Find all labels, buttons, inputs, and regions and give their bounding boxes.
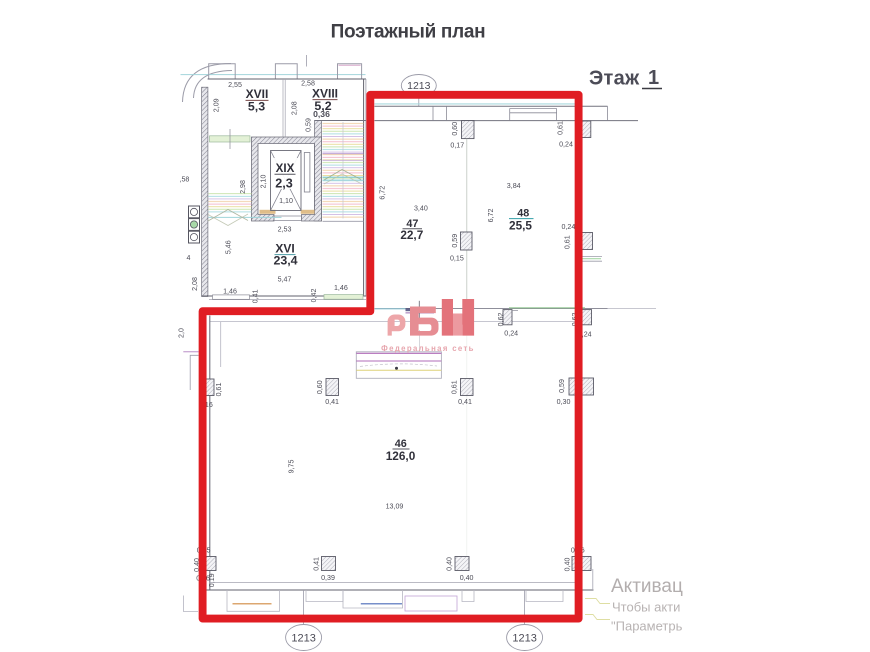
- svg-text:25,5: 25,5: [509, 219, 532, 233]
- svg-text:0,19: 0,19: [208, 573, 216, 587]
- svg-text:0,61: 0,61: [557, 121, 565, 135]
- svg-text:5,46: 5,46: [225, 240, 233, 254]
- svg-text:0,41: 0,41: [312, 557, 320, 571]
- svg-text:XIX: XIX: [276, 162, 295, 175]
- svg-text:1,10: 1,10: [279, 197, 293, 205]
- svg-text:0,62: 0,62: [497, 312, 505, 326]
- svg-text:48: 48: [517, 207, 529, 219]
- svg-text:23,4: 23,4: [273, 254, 297, 268]
- svg-text:0,61: 0,61: [451, 380, 459, 394]
- svg-text:0,59: 0,59: [451, 234, 459, 248]
- svg-text:1213: 1213: [512, 633, 536, 645]
- svg-text:Этаж: Этаж: [589, 68, 640, 90]
- svg-text:0,60: 0,60: [316, 380, 324, 394]
- svg-text:4: 4: [187, 254, 191, 262]
- svg-text:2,10: 2,10: [260, 175, 268, 189]
- svg-text:2,53: 2,53: [278, 226, 292, 234]
- svg-text:6,72: 6,72: [379, 186, 387, 200]
- svg-text:2,98: 2,98: [239, 180, 247, 194]
- svg-text:Поэтажный план: Поэтажный план: [331, 22, 486, 43]
- svg-text:,58: ,58: [180, 175, 190, 183]
- svg-text:9,75: 9,75: [288, 460, 296, 474]
- svg-text:6,72: 6,72: [487, 209, 495, 223]
- svg-text:2,09: 2,09: [213, 98, 221, 112]
- svg-text:0,15: 0,15: [450, 255, 464, 263]
- svg-text:22,7: 22,7: [400, 228, 423, 242]
- svg-text:0,17: 0,17: [450, 142, 464, 150]
- svg-text:1: 1: [648, 67, 659, 89]
- svg-text:2,0: 2,0: [178, 328, 186, 338]
- svg-text:0,59: 0,59: [558, 379, 566, 393]
- svg-text:0,61: 0,61: [215, 383, 223, 397]
- svg-text:2,08: 2,08: [291, 101, 299, 115]
- svg-text:46: 46: [395, 438, 407, 450]
- svg-text:0,39: 0,39: [321, 574, 335, 582]
- svg-text:1213: 1213: [407, 80, 431, 92]
- svg-text:5,47: 5,47: [278, 276, 292, 284]
- svg-text:0,41: 0,41: [458, 398, 472, 406]
- svg-text:3,84: 3,84: [507, 182, 521, 190]
- svg-text:126,0: 126,0: [386, 449, 416, 463]
- svg-text:0,60: 0,60: [451, 122, 459, 136]
- svg-text:Чтобы акти: Чтобы акти: [612, 600, 680, 615]
- svg-text:0,24: 0,24: [504, 329, 518, 337]
- svg-text:5,3: 5,3: [248, 99, 265, 113]
- svg-text:2,55: 2,55: [228, 81, 242, 89]
- svg-text:0,40: 0,40: [446, 557, 454, 571]
- svg-text:2,3: 2,3: [275, 176, 293, 190]
- svg-text:0,59: 0,59: [305, 118, 313, 132]
- svg-text:0,40: 0,40: [563, 557, 571, 571]
- svg-text:0,40: 0,40: [460, 574, 474, 582]
- svg-text:"Параметрь: "Параметрь: [611, 619, 683, 634]
- svg-text:Активац: Активац: [611, 576, 683, 597]
- svg-text:1,46: 1,46: [334, 284, 348, 292]
- svg-text:1,46: 1,46: [223, 287, 237, 295]
- svg-text:13,09: 13,09: [386, 502, 404, 510]
- svg-text:0,61: 0,61: [564, 235, 572, 249]
- svg-text:Федеральная сеть: Федеральная сеть: [381, 344, 475, 353]
- svg-text:0,36: 0,36: [313, 109, 330, 119]
- svg-text:0,30: 0,30: [557, 398, 571, 406]
- svg-text:2,58: 2,58: [301, 79, 315, 87]
- svg-text:0,24: 0,24: [559, 141, 573, 149]
- svg-text:0,24: 0,24: [561, 223, 575, 231]
- svg-text:3,40: 3,40: [414, 204, 428, 212]
- svg-text:1213: 1213: [291, 633, 315, 645]
- svg-text:2,08: 2,08: [191, 277, 199, 291]
- svg-text:0,41: 0,41: [325, 398, 339, 406]
